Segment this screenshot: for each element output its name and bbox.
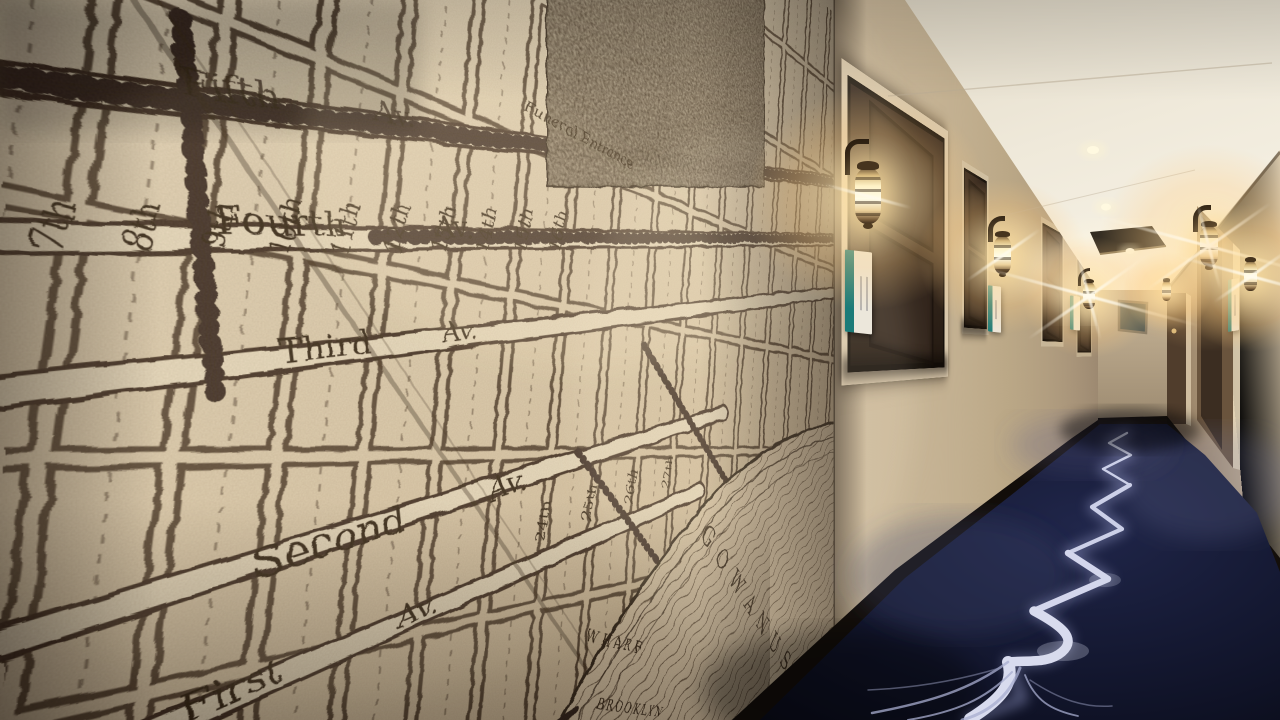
wall-sconce-right-2 (1244, 261, 1257, 291)
wall-sconce-left-1 (855, 168, 881, 224)
sconce-cap (857, 161, 879, 170)
sconce-cap (995, 231, 1009, 237)
sconce-cap (1245, 257, 1256, 262)
hotel-corridor-photo: Fifth Av. Fourth Av. Third Av. Second Av… (0, 0, 1280, 720)
